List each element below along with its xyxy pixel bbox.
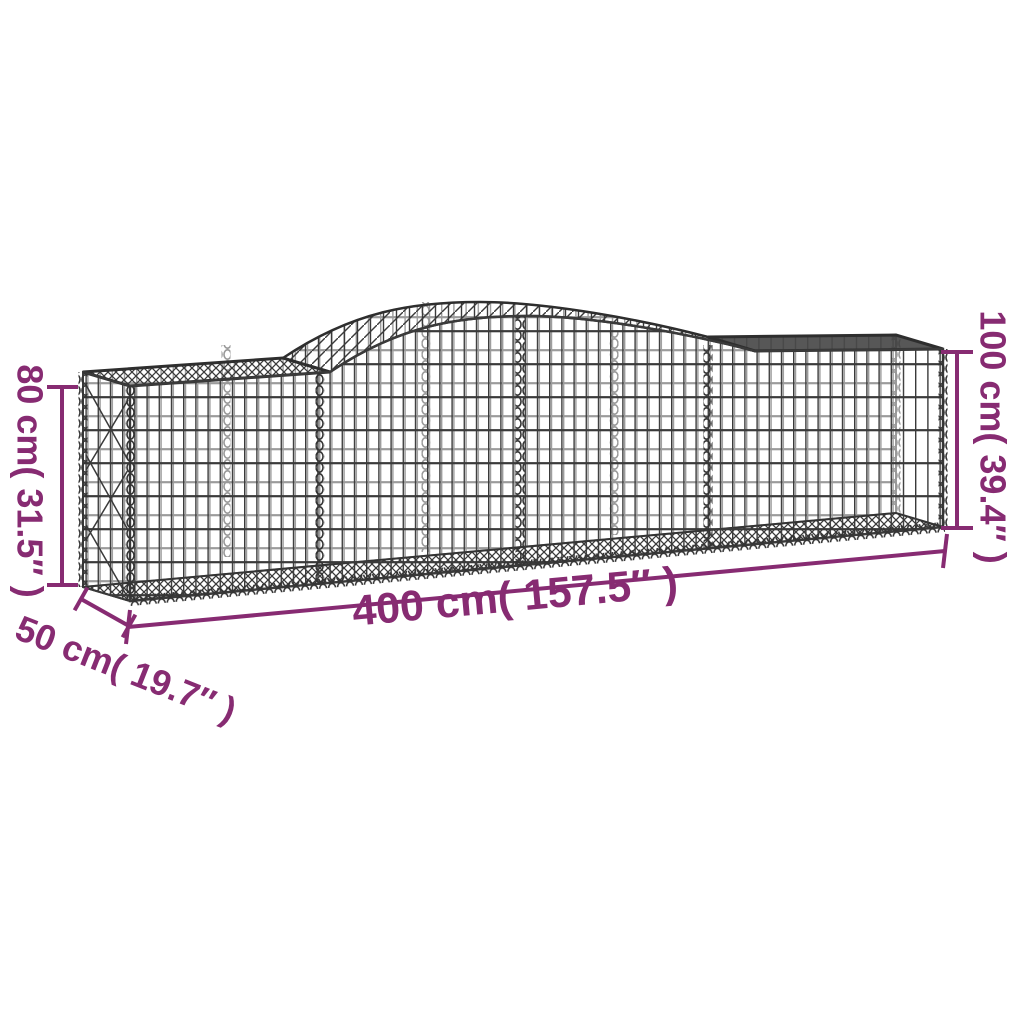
basket-end-panel <box>83 372 130 601</box>
height-right-label: 100 cm( 39.4″ ) <box>973 310 1014 563</box>
dimension-height-left: 80 cm( 31.5″ ) <box>10 364 79 597</box>
dimension-height-right: 100 cm( 39.4″ ) <box>941 310 1014 563</box>
product-dimension-diagram: 80 cm( 31.5″ ) 100 cm( 39.4″ ) 400 cm( 1… <box>0 0 1024 1024</box>
height-left-label: 80 cm( 31.5″ ) <box>10 364 51 597</box>
dimension-depth: 50 cm( 19.7″ ) <box>10 588 242 731</box>
gabion-basket-illustration <box>79 302 948 606</box>
gabion-dimension-diagram: 80 cm( 31.5″ ) 100 cm( 39.4″ ) 400 cm( 1… <box>0 0 1024 1024</box>
